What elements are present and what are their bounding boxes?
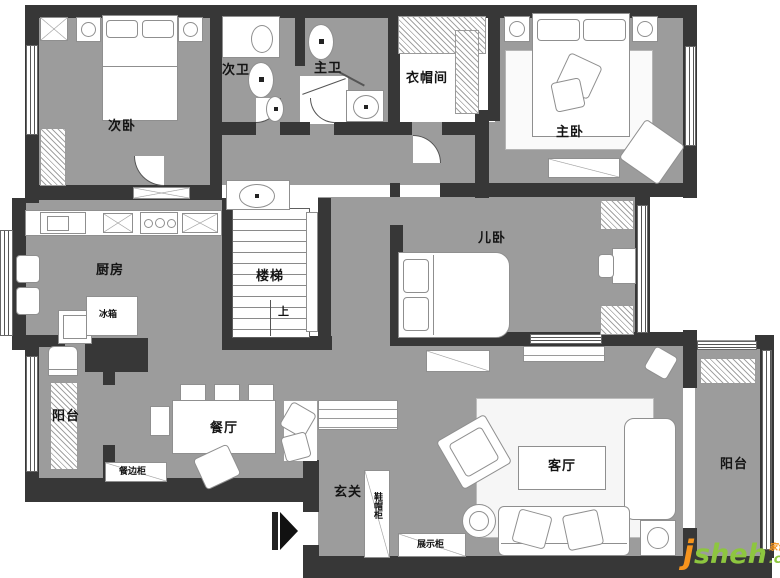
watermark-j: j [683, 540, 694, 566]
entry-arrow-icon [280, 512, 298, 550]
pillow [537, 19, 580, 41]
shoe-hat-cabinet-label: 鞋帽柜 [372, 492, 381, 519]
wall-stairs-right [318, 198, 331, 348]
side-table-square [640, 520, 676, 556]
washing-machine [48, 346, 78, 376]
room-label-bedroom2: 次卧 [108, 120, 136, 133]
nightstand [178, 17, 203, 42]
watermark: jsheh 家饰汇 .com [683, 540, 780, 566]
drying-rack-hatch [700, 358, 756, 384]
pillow [403, 259, 429, 293]
tv-bench [523, 346, 605, 362]
sink-bowl [47, 216, 69, 231]
side-table-inner [647, 527, 669, 549]
watermark-sheh: sheh [694, 544, 767, 566]
room-label-balcony-right: 阳台 [720, 458, 748, 471]
wardrobe-hatch [600, 305, 634, 335]
blanket-fold [103, 66, 177, 67]
room-label-foyer: 玄关 [334, 486, 362, 499]
kitchen-cabinet [16, 255, 40, 283]
toilet-dot [259, 77, 264, 82]
wall-balcony-dining-a [103, 350, 115, 385]
washer-line [49, 369, 77, 370]
desk [612, 248, 636, 284]
sofa-pillow [562, 509, 605, 552]
pillow [106, 20, 138, 38]
room-label-dining: 餐厅 [210, 422, 238, 435]
basin [239, 184, 275, 208]
window-balcony-left [26, 356, 38, 472]
bed-end-bench [548, 158, 620, 178]
bidet [266, 96, 284, 122]
side-table-round [462, 504, 496, 538]
bath-sink-counter [346, 90, 384, 122]
nightstand [504, 16, 530, 42]
pillow [583, 19, 626, 41]
hall-vanity [226, 180, 290, 210]
wall-closet-right [488, 13, 500, 121]
kitchen-wall-cabinet [133, 187, 190, 199]
wall-corridor-bottom-b [440, 183, 683, 197]
bedroom2-cabinet [40, 17, 68, 41]
nightstand-lamp [637, 21, 653, 37]
room-label-kitchen: 厨房 [96, 264, 124, 277]
wardrobe-hatch [600, 200, 634, 230]
bed-double [102, 15, 178, 121]
window-master-right [685, 46, 696, 146]
fridge-label: 冰箱 [99, 311, 117, 320]
room-label-cloakroom: 衣帽间 [406, 72, 448, 85]
closet-rack-hatch [455, 30, 479, 114]
stove [140, 212, 178, 234]
room-label-kids-bedroom: 儿卧 [478, 232, 506, 245]
kitchen-cabinet [16, 287, 40, 315]
wall-bath-divider [295, 18, 305, 66]
dining-chair [150, 406, 170, 436]
room-label-balcony-left: 阳台 [52, 410, 80, 423]
wall-stairs-left [222, 198, 232, 348]
wall-bed2-kitchen [25, 185, 222, 200]
window-bedroom2-left [26, 45, 38, 135]
burner [167, 219, 176, 228]
wall-living-balcony-a [683, 330, 697, 388]
sideboard-label: 餐边柜 [119, 468, 146, 477]
window-living-top [530, 334, 602, 344]
wall-corridor-bottom-a [390, 183, 400, 197]
foyer-shoe-cabinet [318, 400, 398, 430]
nightstand-lamp [509, 21, 525, 37]
room-label-bath2: 次卫 [222, 64, 250, 77]
wall-bed2-bath [210, 13, 222, 198]
bed-kids [398, 252, 510, 338]
counter-cabinet [103, 213, 133, 233]
deco-pillow [550, 77, 586, 113]
wall-foyer-left-a [303, 460, 319, 512]
burner [144, 219, 153, 228]
pillow [142, 20, 174, 38]
side-table-inner [469, 511, 489, 531]
stairs-up-label: 上 [278, 306, 290, 317]
burner [155, 218, 165, 228]
wall-bath2-bottom-b [280, 122, 310, 135]
desk-chair [598, 254, 614, 278]
basin [353, 95, 379, 119]
vanity-counter [222, 16, 280, 58]
drying-rack-hatch [50, 382, 78, 470]
living-cabinet [426, 350, 490, 372]
basin [251, 25, 273, 53]
bed-master [532, 13, 630, 137]
counter-cabinet [182, 213, 218, 233]
display-cabinet-label: 展示柜 [417, 541, 444, 550]
floor-plan: 次卧 次卫 主卫 衣帽间 主卧 儿卧 楼梯 上 厨房 冰箱 阳台 餐厅 餐边柜 … [0, 0, 780, 578]
blanket-fold [433, 255, 434, 335]
wardrobe-hatch [40, 128, 66, 186]
sofa [498, 506, 630, 556]
wall-bathm-bottom [334, 122, 390, 135]
chaise-lounge [624, 418, 676, 520]
toilet-dot [319, 39, 324, 44]
toilet [248, 62, 274, 98]
wall-closet-bottom-a [390, 122, 412, 135]
dishwasher-inner [63, 315, 87, 339]
room-label-living: 客厅 [548, 460, 576, 473]
wall-stairs-bottom [222, 336, 332, 350]
window-kitchen-left [0, 230, 13, 336]
armchair-cushion [448, 426, 500, 478]
basin-dot [364, 105, 368, 109]
wall-kitchen-dining [85, 338, 148, 372]
wall-closet-bottom-b [442, 122, 488, 135]
wall-bath2-bottom-a [222, 122, 256, 135]
bidet-dot [274, 107, 278, 111]
room-label-master-bedroom: 主卧 [556, 126, 584, 139]
pillow [403, 297, 429, 331]
stair-railing [306, 212, 318, 332]
room-label-stairs: 楼梯 [256, 270, 284, 283]
nightstand-lamp [81, 22, 96, 37]
watermark-com: .com [769, 553, 780, 566]
wall-bottom-left [25, 478, 312, 502]
toilet [308, 24, 334, 60]
window-balcony-r-right [762, 350, 772, 550]
window-balcony-r-top [697, 341, 757, 350]
basin-dot [255, 194, 259, 198]
window-kids-right [637, 205, 648, 333]
nightstand-lamp [183, 22, 198, 37]
entry-arrow-bar [272, 512, 278, 550]
nightstand [76, 17, 101, 42]
nightstand [632, 16, 658, 42]
stair-direction-line [270, 300, 271, 336]
kitchen-sink [40, 212, 86, 234]
room-label-bath-master: 主卫 [314, 62, 342, 75]
